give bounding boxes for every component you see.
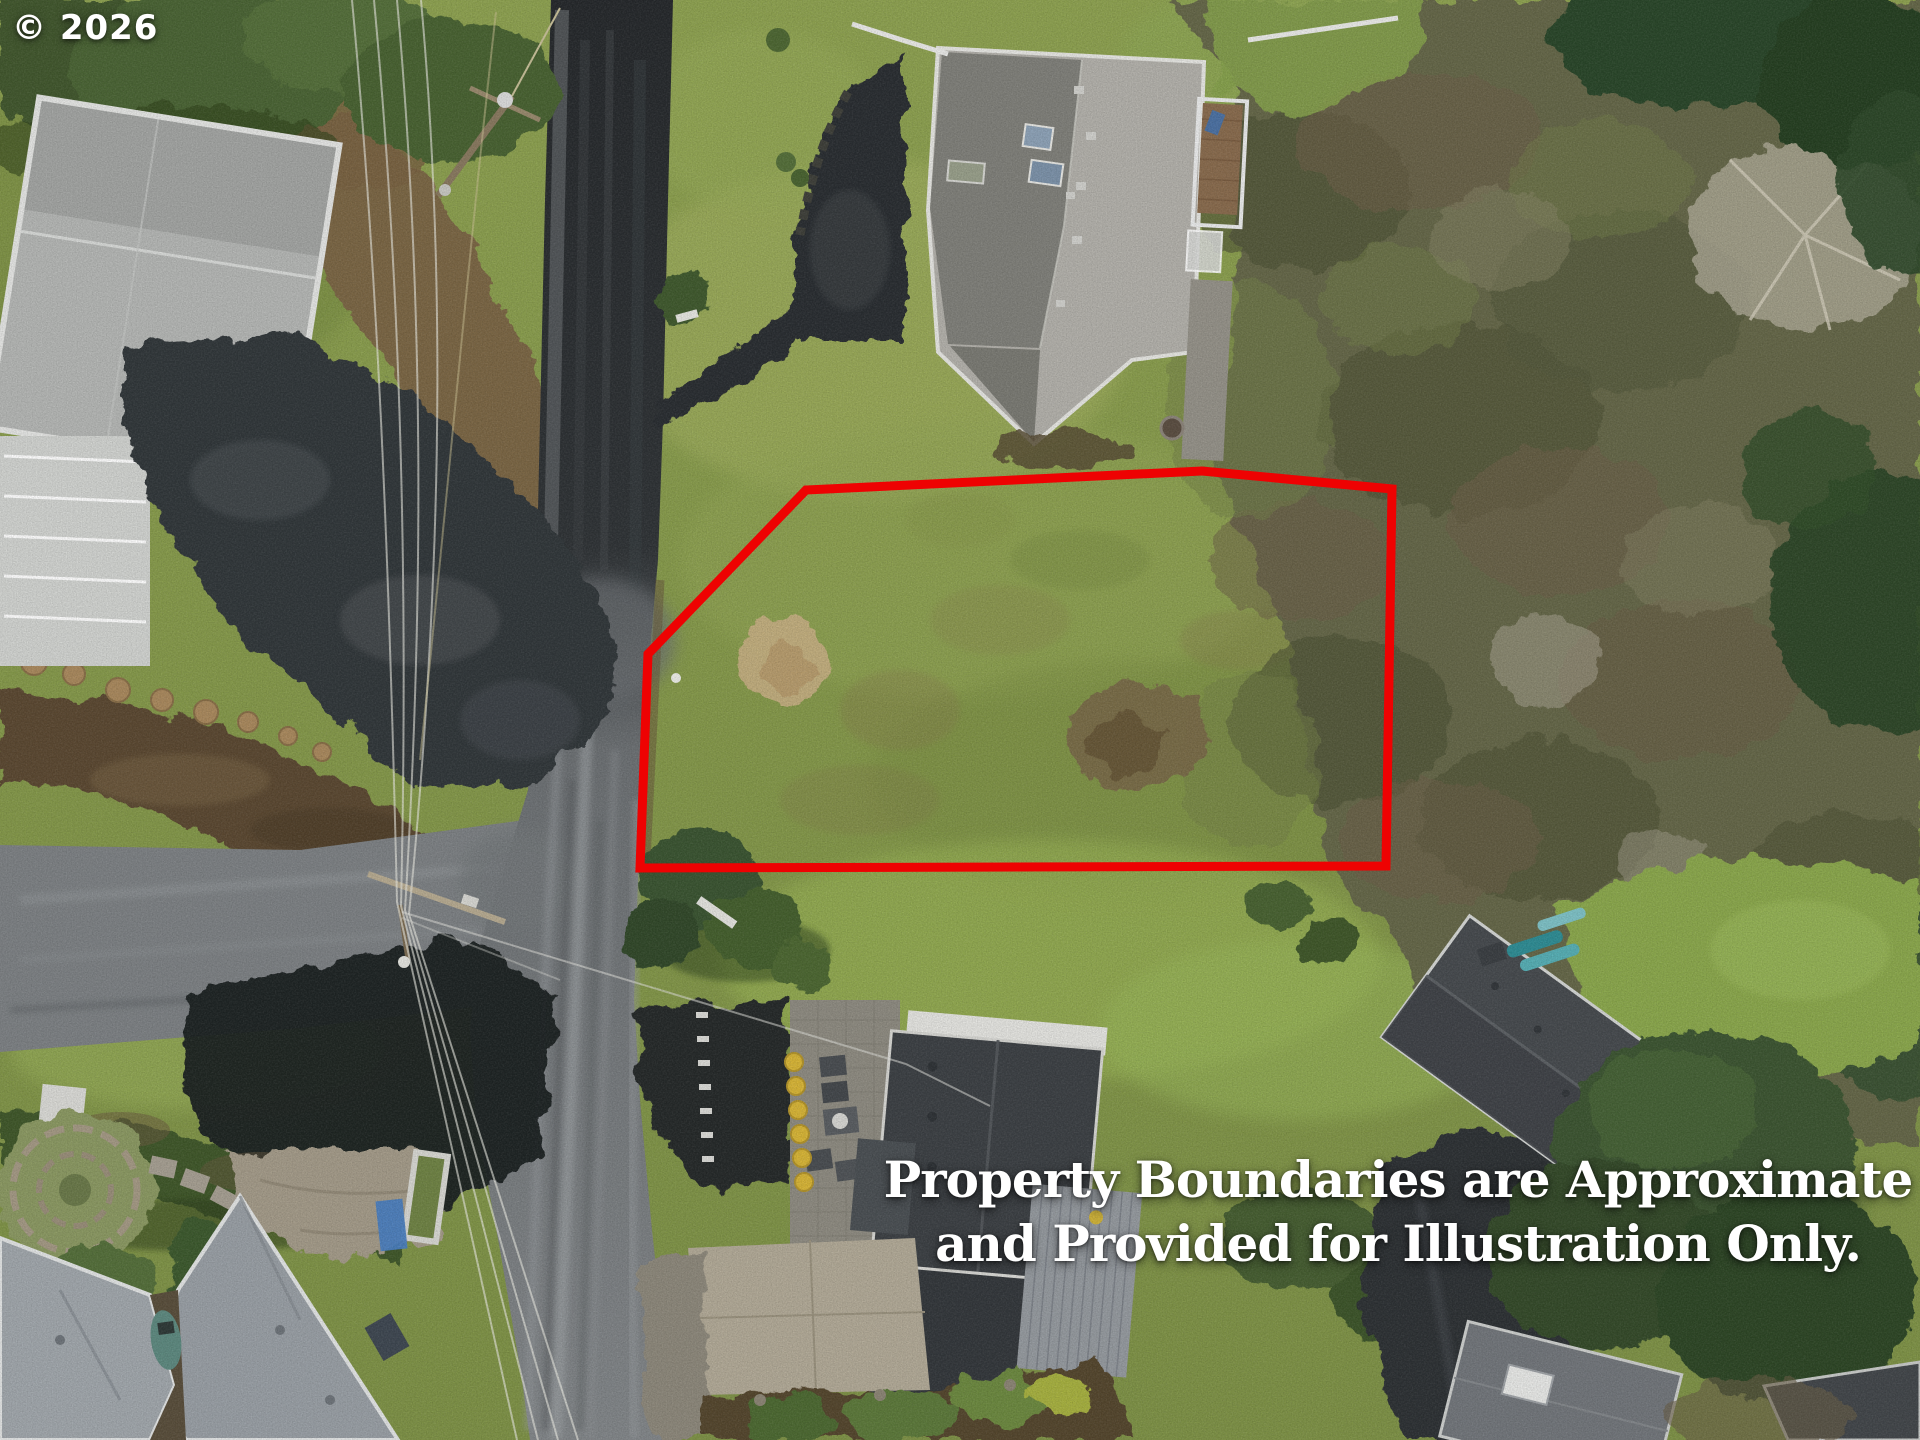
disclaimer-line-2: and Provided for Illustration Only. [884, 1212, 1913, 1276]
boundary-disclaimer: Property Boundaries are Approximate and … [884, 1148, 1913, 1276]
aerial-photo: © 2026 Property Boundaries are Approxima… [0, 0, 1920, 1440]
disclaimer-line-1: Property Boundaries are Approximate [884, 1148, 1913, 1212]
copyright-watermark: © 2026 [12, 8, 158, 48]
